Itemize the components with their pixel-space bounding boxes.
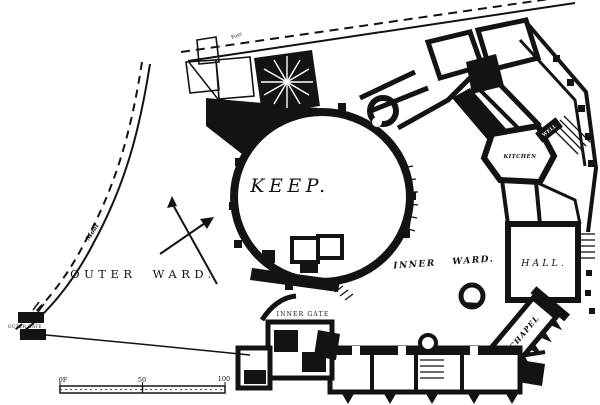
scale-bar: 0F 50 100 [59, 375, 231, 393]
castle-plan-page: WELL CHAPEL [0, 0, 600, 405]
inner-ward-label: INNER WARD. [392, 254, 495, 271]
inner-gatehouse [46, 296, 340, 388]
hall-stair [580, 234, 595, 258]
castle-plan-drawing: WELL CHAPEL [0, 0, 600, 405]
foss-label: Foss [229, 31, 243, 42]
outer-gate-label: OUTER GATE [8, 325, 42, 330]
outer-curtain-wall [46, 335, 250, 355]
scale-end-label: 100 [218, 375, 230, 383]
kitchen-room: WELL [484, 116, 590, 224]
keep-label: KEEP. [249, 175, 329, 197]
inner-gate-label: INNER GATE [277, 311, 330, 318]
outer-ward-label: OUTER WARD. [70, 267, 216, 281]
scale-zero-label: 0F [59, 376, 68, 384]
moat-lines [13, 62, 150, 334]
outer-gate [18, 302, 46, 340]
hall-label: HALL. [520, 258, 567, 269]
kitchen-label: KITCHEN [502, 154, 537, 160]
northwest-outbuildings [186, 37, 254, 99]
scale-mid-label: 50 [138, 376, 146, 384]
